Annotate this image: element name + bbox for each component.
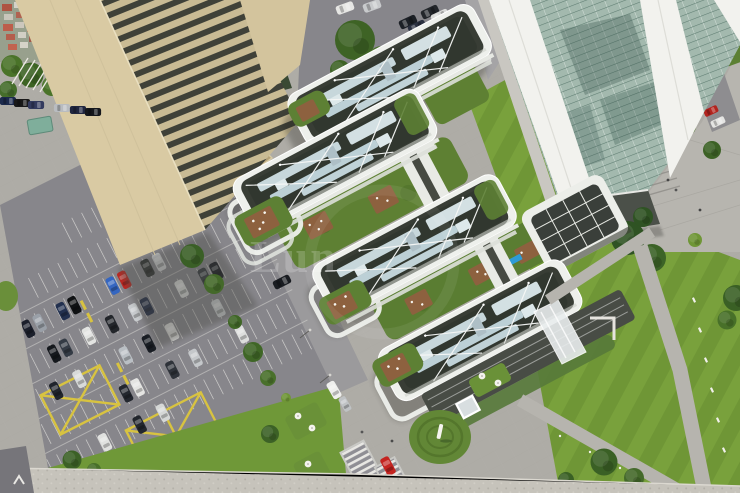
aerial-photo-canvas: Lun: [0, 0, 740, 493]
aerial-photo: Lun: [0, 0, 740, 493]
landscaped-mound: [409, 410, 471, 464]
watermark-text: Lun: [250, 231, 338, 282]
